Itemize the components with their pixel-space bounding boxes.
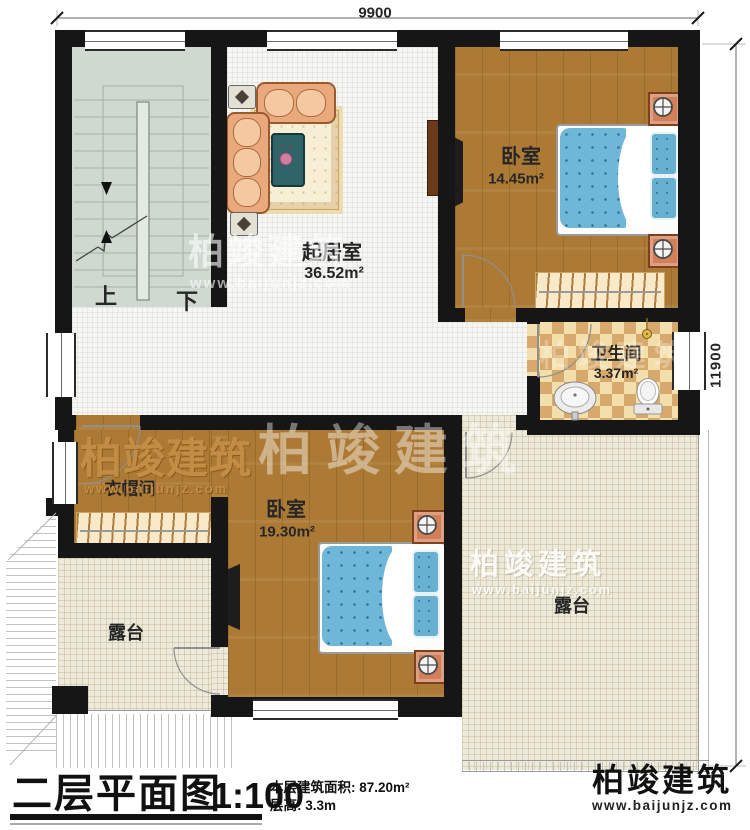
brand-logo-icon	[542, 762, 590, 824]
nightstand	[414, 650, 446, 684]
sofa-cushion	[264, 89, 294, 117]
wall	[527, 315, 540, 324]
wall	[438, 45, 455, 322]
door-threshold	[462, 415, 516, 430]
stat-floor-area: 本层建筑面积: 87.20m²	[270, 776, 410, 796]
sofa-cushion	[233, 148, 261, 177]
nightstand	[648, 92, 682, 126]
wall-pilaster	[52, 686, 88, 714]
tv-icon	[228, 564, 240, 630]
wall	[58, 543, 228, 558]
dimension-width: 9900	[358, 6, 391, 21]
room-label-bedroom-bottom-area: 19.30m²	[259, 525, 315, 540]
end-table	[228, 85, 256, 109]
window	[500, 30, 628, 51]
door-threshold	[463, 308, 516, 322]
brand-url: www.baijunjz.com	[592, 799, 733, 813]
wall	[527, 420, 700, 435]
room-label-bathroom-area: 3.37m²	[594, 366, 638, 380]
stat-floor-height: 层高: 3.3m	[270, 794, 336, 814]
pillow	[412, 550, 440, 594]
pillow	[650, 132, 678, 176]
room-label-terrace-left: 露台	[108, 624, 144, 642]
stairs-down-label: 下	[176, 291, 198, 313]
opening-threshold	[211, 430, 228, 497]
wall	[58, 415, 76, 430]
roof-hatch-left	[6, 512, 56, 757]
door-threshold	[76, 415, 140, 430]
room-label-bathroom-name: 卫生间	[591, 346, 642, 363]
room-label-bedroom-top-name: 卧室	[501, 147, 541, 167]
brand-name: 柏竣建筑	[592, 764, 732, 796]
end-table	[230, 212, 258, 236]
pillow	[412, 594, 440, 638]
window	[267, 30, 397, 51]
title-underline	[10, 814, 262, 820]
room-label-bedroom-bottom-name: 卧室	[266, 500, 306, 520]
window	[253, 699, 398, 720]
coffee-table	[271, 133, 305, 187]
window	[52, 442, 78, 504]
room-label-terrace-right: 露台	[554, 597, 590, 615]
wall	[140, 415, 462, 430]
sofa-cushion	[233, 118, 261, 147]
door-threshold	[527, 324, 540, 376]
sofa-cushion	[296, 89, 326, 117]
window	[85, 30, 185, 51]
floor-hallway	[72, 307, 527, 415]
nightstand	[648, 234, 682, 268]
wall	[444, 430, 462, 717]
wall	[516, 415, 540, 430]
terrace-border	[462, 760, 709, 761]
window	[672, 332, 706, 390]
floor-plan: 9900 11900 上 下 起居室 36.52m² 卧室 14.45m² 卫生…	[0, 0, 750, 830]
stairs-up-label: 上	[95, 286, 117, 308]
cloakroom-hangers	[76, 512, 213, 547]
wardrobe-hangers	[535, 272, 665, 310]
door-threshold	[211, 647, 228, 695]
floor-stairwell	[72, 47, 211, 307]
wall	[516, 308, 700, 322]
sofa-left	[226, 112, 270, 214]
bed-mattress	[560, 128, 626, 228]
nightstand	[412, 510, 446, 544]
terrace-border	[708, 430, 709, 772]
sofa-cushion	[233, 178, 261, 207]
title-underline-thin	[10, 823, 262, 825]
bed-sheet	[618, 128, 652, 228]
room-label-living-name: 起居室	[302, 243, 362, 263]
pillow	[650, 176, 678, 220]
roof-hatch-bottom	[56, 714, 234, 768]
room-label-living-area: 36.52m²	[304, 266, 364, 282]
page-title: 二层平面图	[12, 774, 222, 814]
room-label-bedroom-top-area: 14.45m²	[488, 172, 544, 187]
window	[46, 333, 76, 397]
terrace-border	[698, 430, 699, 772]
dimension-height: 11900	[709, 342, 724, 388]
wall	[455, 308, 465, 322]
wall	[211, 45, 227, 307]
room-label-cloakroom-name: 衣帽间	[105, 481, 156, 498]
wall	[211, 497, 228, 647]
bed-sheet	[382, 546, 416, 646]
